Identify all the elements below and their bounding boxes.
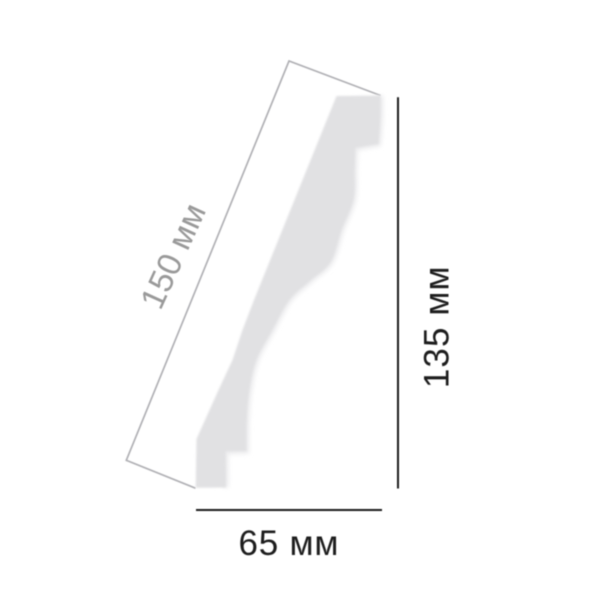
- svg-text:150 мм: 150 мм: [134, 198, 214, 315]
- svg-text:135 мм: 135 мм: [417, 265, 456, 388]
- svg-text:65 мм: 65 мм: [239, 524, 340, 563]
